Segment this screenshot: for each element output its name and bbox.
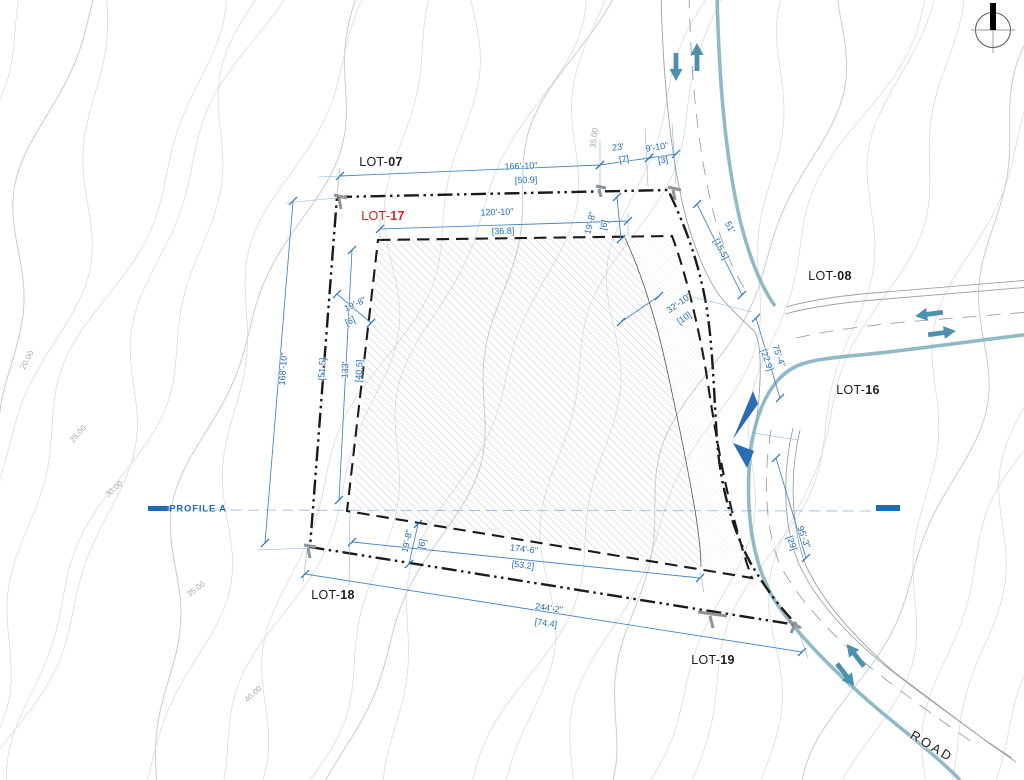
dim-inner-top-ft: 120'-10" (480, 206, 513, 217)
dim-inner-left-m: [40.5] (353, 359, 364, 382)
lot-hatch-areas (352, 236, 752, 578)
dim-outer-top-m: [50.9] (515, 175, 538, 186)
lot-07-label: LOT-07 (359, 155, 403, 169)
lot-18-label: LOT-18 (311, 588, 355, 602)
dim-inner-left-ft: 133' (340, 361, 351, 378)
lot-08-label: LOT-08 (808, 269, 852, 283)
dim-23-m: [7] (618, 153, 629, 164)
site-plan-canvas: LOT-07 LOT-17 LOT-08 LOT-16 LOT-18 LOT-1… (0, 0, 1024, 780)
dim-outer-top-ft: 166'-10" (504, 160, 537, 171)
arrow-right-icon (927, 324, 957, 341)
profile-bar-right (876, 505, 900, 511)
dim-outer-left-m: [51.5] (316, 357, 328, 380)
lot-16-label: LOT-16 (836, 383, 880, 397)
dim-setback-bottom-m: [6] (416, 538, 428, 550)
arrow-downright-icon (832, 660, 859, 690)
dim-inner-top-m: [36.8] (492, 226, 515, 237)
dim-9-10-m: [3] (657, 154, 668, 165)
dim-23-ft: 23' (611, 141, 624, 153)
lot-19-label: LOT-19 (691, 653, 735, 667)
north-arrow-icon (971, 3, 1015, 53)
lot-17-label: LOT-17 (361, 209, 405, 223)
profile-a-label: PROFILE A (169, 504, 227, 515)
